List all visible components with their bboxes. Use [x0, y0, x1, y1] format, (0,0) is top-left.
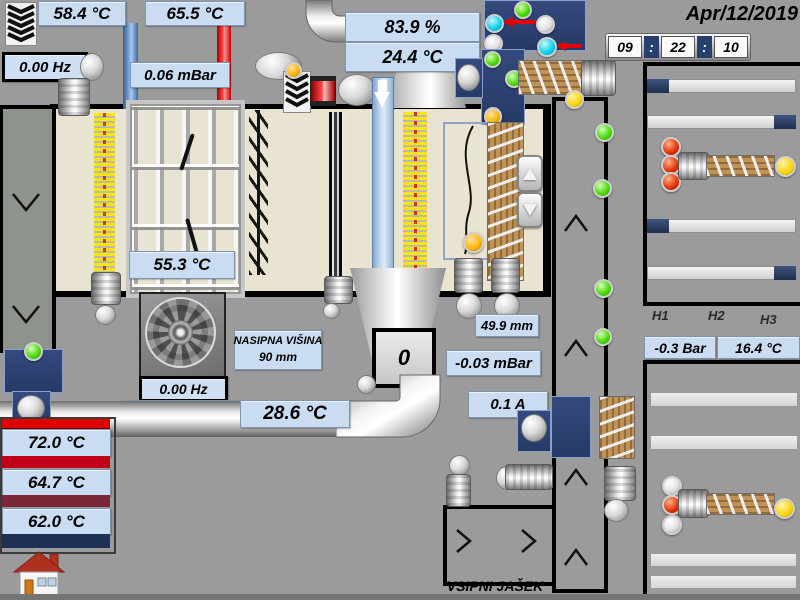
silo-gate-bar [647, 219, 796, 233]
transfer-screw-conveyor [599, 396, 635, 459]
intake-shaft-label: VSIPNI JAŠEK [432, 578, 558, 595]
boiler-hmi-screen: 58.4 °C 65.5 °C 0.00 Hz 0.06 mBar 83.9 %… [0, 0, 800, 600]
stoker-drive-motor [491, 258, 520, 293]
silo-level-bar [650, 553, 797, 567]
gate-position-segment [774, 115, 796, 129]
tank-bar-bottom [2, 534, 110, 548]
silo-conveyor-motor [678, 489, 709, 518]
dosing-status-light-green [484, 51, 501, 68]
time-separator: : [644, 36, 659, 58]
arrow-head [556, 41, 566, 51]
silo-status-light-yellow [774, 498, 795, 519]
top-percent-readout: 83.9 % [345, 12, 480, 42]
flow-up-chevron-icon [562, 212, 590, 234]
flow-direction-arrow-left [556, 41, 582, 51]
grate-drive-motor [91, 272, 121, 305]
silo-level-bar [650, 435, 798, 450]
gate-position-segment [647, 79, 669, 93]
silo-gate-bar [647, 79, 796, 93]
shaft-drive-motor [446, 474, 471, 507]
flow-right-chevron-icon [453, 527, 473, 555]
silo-status-light-white [662, 515, 682, 535]
arrow-shaft [513, 20, 536, 24]
motor-sphere [323, 303, 340, 319]
gate-position-segment [774, 266, 796, 280]
date-display: Apr/12/2019 [610, 3, 798, 27]
motor-sphere [95, 305, 116, 325]
silo-temp-readout: 16.4 °C [717, 336, 800, 359]
silo-conveyor-motor [678, 152, 709, 180]
drive-motor [454, 258, 483, 293]
gap-distance-readout: 49.9 mm [475, 314, 539, 337]
home-button[interactable] [12, 550, 66, 598]
heating-element-column [94, 113, 115, 274]
silo-gate-bar [647, 115, 796, 129]
time-separator: : [697, 36, 712, 58]
flow-down-chevron-icon [10, 302, 42, 326]
transfer-drive-motor [604, 466, 636, 501]
time-seconds: 10 [714, 36, 748, 58]
flow-down-chevron-icon [10, 190, 42, 214]
feeder-status-light-cyan [537, 37, 557, 57]
silo-level-bar [650, 392, 798, 407]
hopper-label-h1: H1 [652, 308, 680, 324]
flue-temp-left-readout: 58.4 °C [38, 1, 126, 26]
lambda-probe-pipes [329, 112, 345, 278]
grate-temp-readout: 55.3 °C [129, 251, 235, 279]
riser-status-light-green [594, 328, 612, 346]
burner-status-light [285, 62, 302, 79]
chamber-pressure-readout: 0.06 mBar [130, 62, 230, 88]
down-arrow-icon [523, 204, 537, 216]
airflow-down-arrow-icon [374, 92, 390, 108]
infeed-conveyor-motor [581, 60, 616, 96]
sensor-sphere [457, 64, 480, 91]
tank-temp-bottom-readout: 62.0 °C [2, 508, 111, 535]
stoker-down-button[interactable] [517, 192, 543, 228]
silo-level-bar [650, 575, 797, 589]
tank-temp-top-readout: 72.0 °C [2, 429, 111, 457]
flow-right-chevron-icon [518, 527, 538, 555]
time-hours: 09 [608, 36, 642, 58]
motor-sphere [604, 499, 629, 522]
drive-motor [324, 276, 353, 304]
fill-height-title: NASIPNA VIŠINA [234, 334, 323, 349]
flow-direction-arrow-left [503, 17, 536, 27]
ash-scraper-chain [249, 110, 268, 275]
flow-up-chevron-icon [562, 466, 590, 488]
airflow-down-arrow-icon [378, 80, 387, 92]
main-fan-hub [168, 320, 193, 345]
riser-status-light-yellow [565, 90, 584, 109]
silo-screw-conveyor [706, 155, 775, 177]
hopper-label-h2: H2 [708, 308, 736, 324]
riser-status-light-green [594, 279, 613, 298]
riser-junction-box [551, 396, 591, 458]
time-minutes: 22 [661, 36, 695, 58]
tank-status-light-green [24, 342, 43, 361]
tank-bar-upper [2, 456, 110, 468]
riser-status-light-green [595, 123, 614, 142]
arrow-shaft [566, 44, 582, 48]
motor-sphere [449, 455, 470, 476]
gate-position-segment [647, 219, 669, 233]
sensor-sphere [521, 414, 547, 442]
tank-bar-top [2, 419, 110, 429]
flow-up-chevron-icon [562, 337, 590, 359]
feeder-status-light-white [536, 15, 555, 34]
flue-temp-right-readout: 65.5 °C [145, 1, 245, 26]
chimney-exhaust-icon [5, 2, 37, 46]
heating-element-column [403, 112, 427, 275]
silo-screw-conveyor [706, 493, 775, 515]
stoker-up-button[interactable] [517, 155, 543, 192]
flow-up-chevron-icon [562, 546, 590, 568]
level-sensor-light-bottom [463, 232, 484, 253]
valve-sphere [338, 74, 376, 106]
silo-pressure-readout: -0.3 Bar [644, 336, 716, 359]
pipe-elbow [336, 370, 462, 442]
time-display: 09 : 22 : 10 [605, 33, 751, 61]
hopper-label-h3: H3 [760, 312, 788, 328]
tank-temp-middle-readout: 64.7 °C [2, 469, 111, 496]
silo-gate-bar [647, 266, 796, 280]
feeder-status-light-cyan [485, 14, 504, 33]
riser-status-light-green [593, 179, 612, 198]
red-pump-valve [310, 76, 336, 106]
silo-status-light-yellow [775, 156, 796, 177]
bottom-edge-strip [0, 594, 800, 600]
exhaust-fan-motor [58, 78, 90, 116]
tank-bar-lower [2, 495, 110, 507]
up-arrow-icon [523, 168, 537, 180]
fill-height-value: 90 mm [259, 349, 297, 365]
main-fan-frequency-setpoint[interactable]: 0.00 Hz [139, 376, 228, 402]
arrow-head [503, 17, 513, 27]
return-pipe-temp-readout: 28.6 °C [240, 400, 350, 428]
valve-sphere [80, 53, 104, 81]
shaft-drive-motor [505, 464, 553, 490]
fill-height-label: NASIPNA VIŠINA 90 mm [234, 330, 322, 370]
